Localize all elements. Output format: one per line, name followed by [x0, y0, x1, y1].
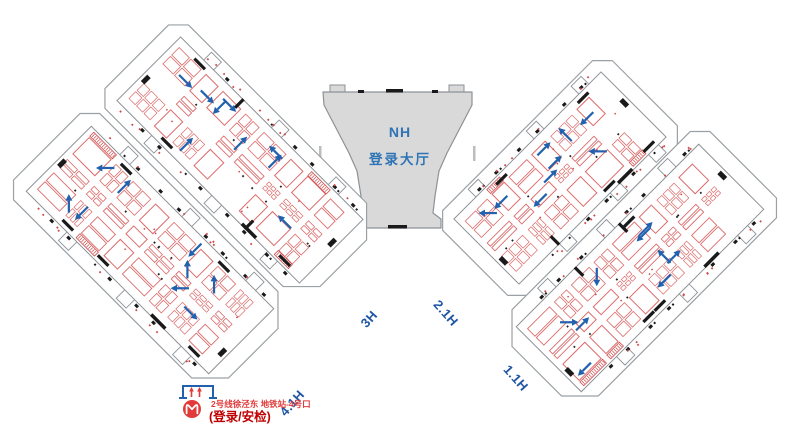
lobby-subtitle: 登录大厅 [369, 148, 431, 168]
floorplan-svg [0, 0, 800, 443]
lobby-title: NH [389, 124, 411, 140]
entrance-bracket [179, 386, 217, 398]
floorplan-canvas: NH 登录大厅 4.1H 3H 2.1H 1.1H 2号线徐泾东 地铁站-4号口… [0, 0, 800, 443]
metro-logo-icon [183, 400, 201, 418]
metro-station-text: 2号线徐泾东 地铁站-4号口 [211, 400, 311, 410]
up-arrows-icon [189, 387, 202, 397]
metro-security-text: (登录/安检) [209, 410, 271, 425]
